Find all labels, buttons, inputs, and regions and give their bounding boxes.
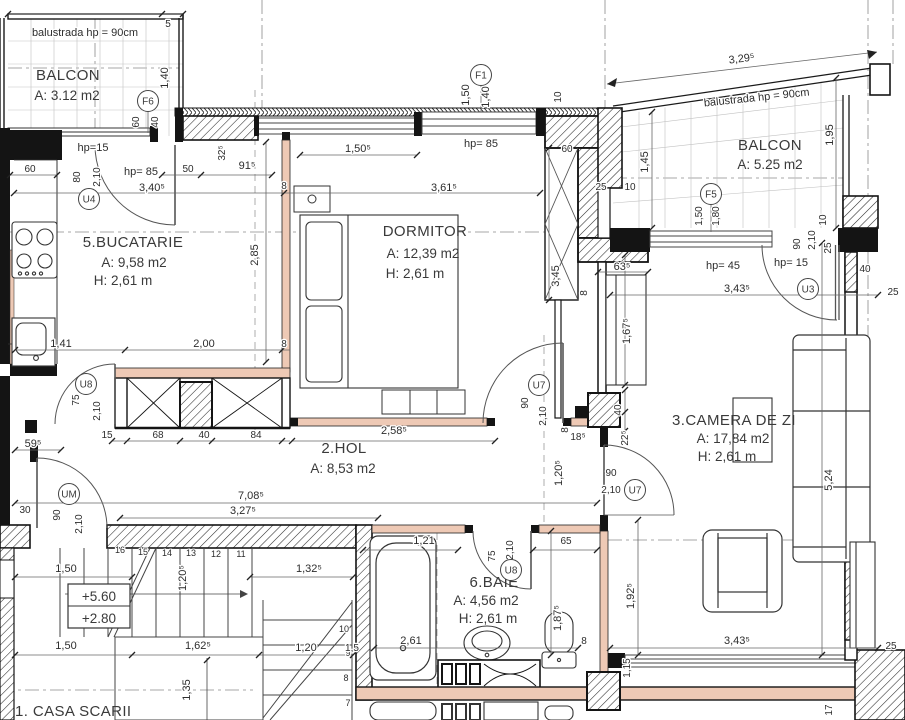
sideboard bbox=[382, 390, 465, 414]
bath-cabinet bbox=[438, 660, 540, 688]
dim: 91⁵ bbox=[239, 160, 256, 172]
dim: 22⁵ bbox=[620, 430, 631, 445]
dim: 3,45 bbox=[550, 265, 562, 286]
bedroom-window-f1 bbox=[422, 112, 536, 134]
stair-tread-13: 13 bbox=[186, 548, 196, 558]
dim-door-u8k-h: 2,10 bbox=[92, 401, 103, 421]
dim: 60 bbox=[561, 144, 573, 155]
room-name-camera: 3.CAMERA DE ZI bbox=[672, 412, 796, 429]
room-height-bucatarie: H: 2,61 m bbox=[94, 273, 153, 288]
svg-text:U8: U8 bbox=[505, 566, 518, 577]
bubble-u7-bedroom: U7 bbox=[529, 375, 550, 396]
dim: 68 bbox=[152, 430, 164, 441]
svg-text:UM: UM bbox=[61, 490, 77, 501]
room-name-bucatarie: 5.BUCATARIE bbox=[83, 234, 184, 251]
stair-tread-10: 10 bbox=[339, 624, 349, 634]
dim: 63⁵ bbox=[614, 261, 631, 273]
dim-door-u8b-h: 2,10 bbox=[505, 540, 516, 560]
kitchen-window bbox=[258, 118, 418, 134]
stair-tread-12: 12 bbox=[211, 549, 221, 559]
dim: 15 bbox=[101, 430, 113, 441]
dim: 1,62⁵ bbox=[185, 640, 211, 652]
living-top-wall bbox=[610, 228, 878, 252]
dim: 1,15 bbox=[622, 658, 633, 678]
dim: 40 bbox=[150, 116, 161, 128]
bath-sink bbox=[464, 626, 510, 660]
dim: 30 bbox=[19, 505, 31, 516]
dim: 2,61 bbox=[400, 635, 421, 647]
dim-living-width: 3,43⁵ bbox=[724, 283, 750, 295]
stair-tread-8: 8 bbox=[343, 673, 348, 683]
dim: 8 bbox=[579, 290, 590, 296]
floor-plan-page: balustrada hp = 90cm 5 BALCON A: 3.12 m2… bbox=[0, 0, 905, 720]
bubble-u3: U3 bbox=[798, 279, 819, 300]
svg-text:U8: U8 bbox=[80, 380, 93, 391]
living-window-f5 bbox=[650, 231, 772, 247]
dim: 10 bbox=[818, 214, 829, 226]
dim: 25 bbox=[887, 287, 899, 298]
dim: 1,87⁵ bbox=[552, 605, 564, 631]
dim: 50 bbox=[182, 164, 194, 175]
dim-f5-h: 1,80 bbox=[711, 206, 722, 226]
dim: 2,58⁵ bbox=[381, 425, 407, 437]
dim: 8 bbox=[581, 636, 587, 647]
dim: 1,50 bbox=[55, 640, 76, 652]
room-area-balcon-tl: A: 3.12 m2 bbox=[34, 88, 99, 103]
stair-tread-7: 7 bbox=[345, 698, 350, 708]
dim-f5-w: 1,50 bbox=[694, 206, 705, 226]
dim: 32⁵ bbox=[217, 145, 228, 160]
dim: 1,95 bbox=[824, 124, 836, 145]
dim-f1-w: 1,50 bbox=[460, 84, 472, 105]
level-marker: +5.60 +2.80 bbox=[68, 584, 130, 628]
dim: 8 bbox=[281, 181, 287, 192]
dim: 59⁵ bbox=[25, 438, 42, 450]
dim: 84 bbox=[250, 430, 262, 441]
dim: 8 bbox=[560, 427, 571, 433]
bed bbox=[300, 215, 458, 388]
dim-door-u4-h: 2,10 bbox=[92, 167, 103, 187]
level-upper: +5.60 bbox=[82, 589, 116, 604]
room-area-bucatarie: A: 9,58 m2 bbox=[101, 255, 166, 270]
bubble-f1: F1 bbox=[471, 65, 492, 86]
bubble-um: UM bbox=[59, 484, 80, 505]
dim-balcony-width: 3,29⁵ bbox=[728, 51, 755, 66]
dim-f1-h: 1,40 bbox=[480, 86, 492, 107]
room-name-casa-scarii: 1. CASA SCARII bbox=[15, 703, 131, 720]
dim: 3,27⁵ bbox=[230, 505, 256, 517]
dim-bedroom-width: 3,61⁵ bbox=[431, 182, 457, 194]
svg-text:F6: F6 bbox=[142, 97, 154, 108]
dim: 3,43⁵ bbox=[724, 635, 750, 647]
room-name-hol: 2.HOL bbox=[321, 440, 366, 457]
door-u7-bedroom bbox=[483, 343, 563, 423]
nightstand bbox=[294, 186, 330, 212]
dim: 10 bbox=[624, 182, 636, 193]
dim-door-u7b-w: 90 bbox=[520, 397, 531, 409]
dim: 1,20⁵ bbox=[177, 565, 189, 591]
dim: 1,20⁵ bbox=[553, 460, 565, 486]
room-name-balcon-tr: BALCON bbox=[738, 137, 802, 154]
bubble-u8-bath: U8 bbox=[501, 560, 522, 581]
dim: 25 bbox=[885, 641, 897, 652]
dim-hall-total: 7,08⁵ bbox=[238, 490, 264, 502]
bubble-f6: F6 bbox=[138, 91, 159, 112]
room-area-dormitor: A: 12,39 m2 bbox=[387, 246, 460, 261]
floor-plan-drawing: balustrada hp = 90cm 5 BALCON A: 3.12 m2… bbox=[0, 0, 905, 720]
dim: 40 bbox=[859, 264, 871, 275]
dim: 40 bbox=[613, 404, 624, 416]
svg-text:U7: U7 bbox=[533, 381, 546, 392]
svg-text:U3: U3 bbox=[802, 285, 815, 296]
bubble-u8-kitchen: U8 bbox=[76, 374, 97, 395]
room-height-camera: H: 2,61 m bbox=[698, 449, 757, 464]
room-name-balcon-tl: BALCON bbox=[36, 67, 100, 84]
dim-door-u8b-w: 75 bbox=[487, 550, 498, 562]
dim-door-u7l-w: 90 bbox=[605, 468, 617, 479]
room-area-camera: A: 17,84 m2 bbox=[697, 431, 770, 446]
dim-kitchen-width: 3,40⁵ bbox=[139, 182, 165, 194]
dim-door-um-w: 90 bbox=[52, 509, 63, 521]
svg-text:U4: U4 bbox=[83, 195, 96, 206]
dim-door-u4-w: 80 bbox=[72, 171, 83, 183]
dim: 1,32⁵ bbox=[296, 563, 322, 575]
stair-tread-16: 16 bbox=[115, 545, 125, 555]
sofa bbox=[793, 335, 870, 562]
dim: 1,50⁵ bbox=[345, 143, 371, 155]
stair-tread-11: 11 bbox=[236, 549, 245, 559]
shelf-right bbox=[850, 542, 875, 648]
room-area-balcon-tr: A: 5.25 m2 bbox=[737, 157, 802, 172]
bubble-u7-living: U7 bbox=[625, 480, 646, 501]
armchair bbox=[703, 530, 782, 612]
room-height-dormitor: H: 2,61 m bbox=[386, 266, 445, 281]
stair-tread-15: 15 bbox=[138, 547, 148, 557]
dim-door-u8k-w: 75 bbox=[71, 394, 82, 406]
dim: 10 bbox=[553, 91, 564, 103]
dim: 5,24 bbox=[823, 469, 835, 490]
dim: 1,40 bbox=[159, 67, 171, 88]
level-lower: +2.80 bbox=[82, 611, 116, 626]
bubble-f5: F5 bbox=[701, 184, 722, 205]
bubble-u4: U4 bbox=[79, 189, 100, 210]
dim: 1,92⁵ bbox=[625, 583, 637, 609]
dim: 2,85 bbox=[249, 244, 261, 265]
dim: 1,41 bbox=[50, 338, 71, 350]
dim: 1,45 bbox=[639, 151, 651, 172]
balustrada-label-left: balustrada hp = 90cm bbox=[32, 27, 138, 39]
annotation-hp15-living: hp= 15 bbox=[774, 257, 808, 269]
room-area-hol: A: 8,53 m2 bbox=[310, 461, 375, 476]
dim: 25 bbox=[823, 242, 834, 254]
room-name-dormitor: DORMITOR bbox=[383, 223, 468, 240]
dim: 40 bbox=[198, 430, 210, 441]
dim: 8 bbox=[281, 339, 287, 350]
dim-door-um-h: 2,10 bbox=[74, 514, 85, 534]
dim: 1,20 bbox=[295, 642, 316, 654]
dim: 65 bbox=[560, 536, 572, 547]
dim: 1,21 bbox=[413, 535, 434, 547]
dim: 1,50 bbox=[55, 563, 76, 575]
dim: 1,67⁵ bbox=[621, 318, 633, 344]
bathtub bbox=[370, 536, 436, 680]
room-area-baie: A: 4,56 m2 bbox=[453, 593, 518, 608]
dim: 60 bbox=[24, 164, 36, 175]
dim: 18⁵ bbox=[570, 432, 585, 443]
annotation-hp85-bedroom: hp= 85 bbox=[464, 138, 498, 150]
dim: 1,35 bbox=[181, 679, 193, 700]
dim: 60 bbox=[131, 116, 142, 128]
dim: 1,5 bbox=[345, 643, 359, 654]
cooktop bbox=[12, 222, 57, 278]
dim: 5 bbox=[165, 19, 171, 30]
dim: 25 bbox=[595, 182, 607, 193]
svg-text:U7: U7 bbox=[629, 486, 642, 497]
dim-door-u7l-h: 2,10 bbox=[601, 485, 621, 496]
hall-wardrobe bbox=[115, 368, 290, 428]
dim-door-u7b-h: 2,10 bbox=[538, 406, 549, 426]
annotation-hp45: hp= 45 bbox=[706, 260, 740, 272]
stair-tread-14: 14 bbox=[162, 548, 172, 558]
svg-text:F1: F1 bbox=[475, 71, 487, 82]
annotation-hp15: hp=15 bbox=[78, 142, 109, 154]
annotation-hp85-kitchen: hp= 85 bbox=[124, 166, 158, 178]
room-height-baie: H: 2,61 m bbox=[459, 611, 518, 626]
dim-door-u3-h: 2,10 bbox=[807, 230, 818, 250]
dim: 2,00 bbox=[193, 338, 214, 350]
dim-door-u3-w: 90 bbox=[792, 238, 803, 250]
kitchen-sink bbox=[8, 318, 55, 366]
dim: 17 bbox=[824, 704, 835, 716]
svg-text:F5: F5 bbox=[705, 190, 717, 201]
